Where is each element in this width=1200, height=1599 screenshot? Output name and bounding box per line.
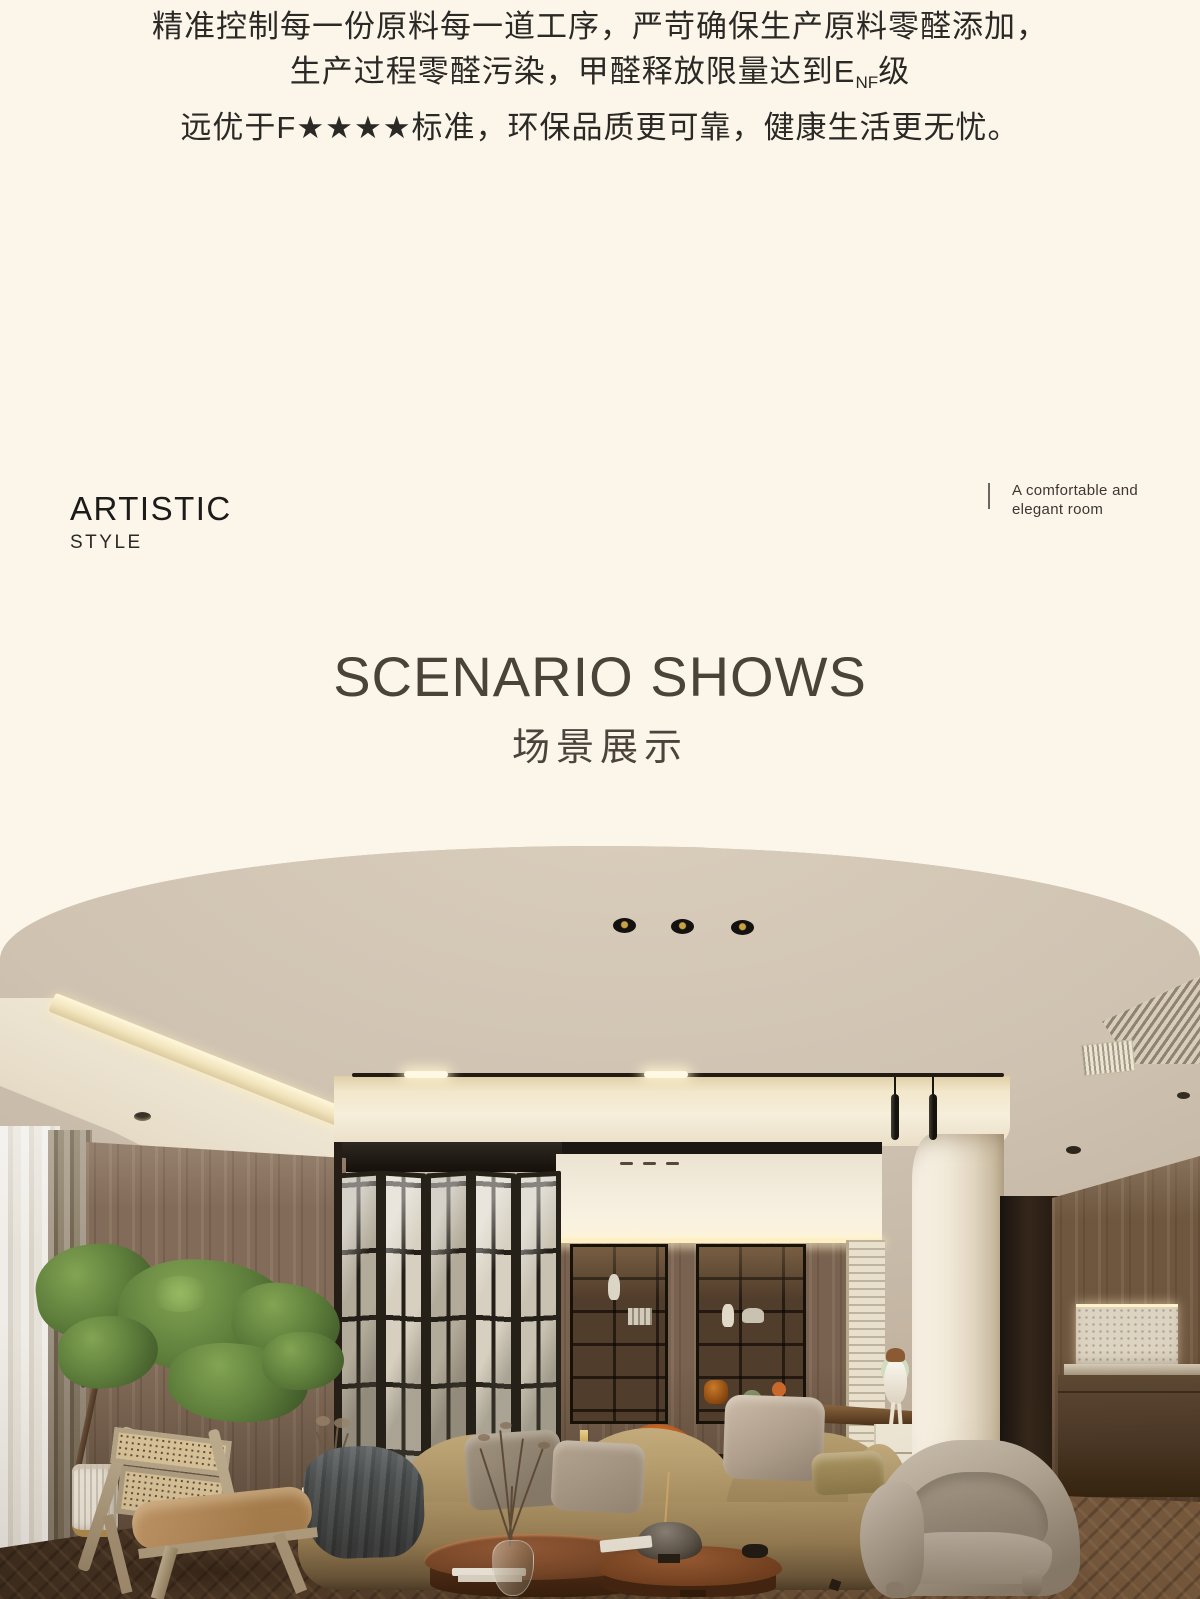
air-vent-grille	[1080, 1039, 1135, 1076]
scenario-photo	[0, 846, 1200, 1599]
coffee-table-leg	[680, 1590, 706, 1597]
dried-branch-buds	[478, 1434, 490, 1441]
eco-intro-paragraph: 精准控制每一份原料每一道工序，严苛确保生产原料零醛添加， 生产过程零醛污染，甲醛…	[0, 4, 1200, 150]
sofa-pillow	[550, 1440, 646, 1515]
shelf-decor-vase	[722, 1304, 734, 1327]
ceiling-spotlight	[613, 918, 636, 933]
shelf-decor-bottles	[704, 1380, 728, 1404]
lit-stone-niche	[1076, 1304, 1178, 1369]
track-light-segment	[644, 1071, 688, 1078]
gray-throw-blanket	[302, 1444, 426, 1560]
boucle-armchair-arm	[860, 1482, 924, 1598]
front-soffit	[334, 1076, 1010, 1146]
section-title-en: SCENARIO SHOWS	[0, 644, 1200, 709]
doll-figurine	[884, 1358, 907, 1404]
decor-object	[742, 1544, 768, 1558]
doll-hair	[886, 1348, 905, 1362]
shelf-decor-bust	[608, 1274, 620, 1300]
enf-subscript: NF	[855, 73, 878, 92]
side-note-line-2: elegant room	[1012, 500, 1138, 519]
pendant-wire	[932, 1077, 934, 1095]
shelf-decor-books	[628, 1308, 652, 1325]
niche-counter	[1064, 1364, 1200, 1375]
intro-line-3: 远优于F★★★★标准，环保品质更可靠，健康生活更无忧。	[0, 105, 1200, 150]
pendant-light	[929, 1094, 937, 1140]
track-light-segment	[404, 1071, 448, 1078]
artistic-title: ARTISTIC	[70, 490, 232, 528]
intro-line-1: 精准控制每一份原料每一道工序，严苛确保生产原料零醛添加，	[0, 4, 1200, 49]
artistic-style-block: ARTISTIC STYLE	[70, 490, 232, 554]
section-title-zh: 场景展示	[0, 716, 1200, 771]
side-note: A comfortable and elegant room	[988, 481, 1138, 519]
shelf-decor-flowers	[772, 1382, 786, 1397]
artistic-subtitle: STYLE	[70, 532, 232, 554]
side-note-divider	[988, 483, 990, 509]
recessed-light	[620, 1162, 633, 1165]
dried-branch-buds	[500, 1422, 512, 1429]
study-cove-light	[556, 1238, 882, 1243]
recessed-spotlight	[1177, 1092, 1190, 1099]
product-detail-page: 精准控制每一份原料每一道工序，严苛确保生产原料零醛添加， 生产过程零醛污染，甲醛…	[0, 0, 1200, 1599]
sofa-pillow	[811, 1450, 885, 1496]
bookshelf-left	[570, 1244, 668, 1424]
side-note-text: A comfortable and elegant room	[1012, 481, 1138, 519]
dried-flower	[316, 1416, 330, 1426]
pendant-light	[891, 1094, 899, 1140]
study-ceiling	[556, 1154, 882, 1242]
door-header	[334, 1142, 562, 1172]
dried-flower	[334, 1418, 350, 1428]
side-note-line-1: A comfortable and	[1012, 481, 1138, 500]
recessed-spotlight	[134, 1112, 151, 1121]
ceiling-spotlight	[671, 919, 694, 934]
boucle-armchair-leg	[886, 1582, 904, 1597]
pendant-wire	[894, 1077, 896, 1095]
sofa-pillow	[723, 1394, 826, 1481]
cabinet-seam	[1058, 1391, 1200, 1393]
decor-bowl-foot	[658, 1554, 680, 1563]
dried-branch-buds	[538, 1442, 550, 1449]
shelf-decor-figurine	[742, 1308, 764, 1323]
intro-line-2: 生产过程零醛污染，甲醛释放限量达到ENF级	[0, 49, 1200, 105]
recessed-spotlight	[1066, 1146, 1081, 1154]
boucle-armchair-leg	[1022, 1570, 1042, 1596]
tree-foliage-highlight	[150, 1276, 210, 1312]
lower-cabinet	[1058, 1375, 1200, 1497]
recessed-light	[643, 1162, 656, 1165]
recessed-light	[666, 1162, 679, 1165]
ceiling-spotlight	[731, 920, 754, 935]
